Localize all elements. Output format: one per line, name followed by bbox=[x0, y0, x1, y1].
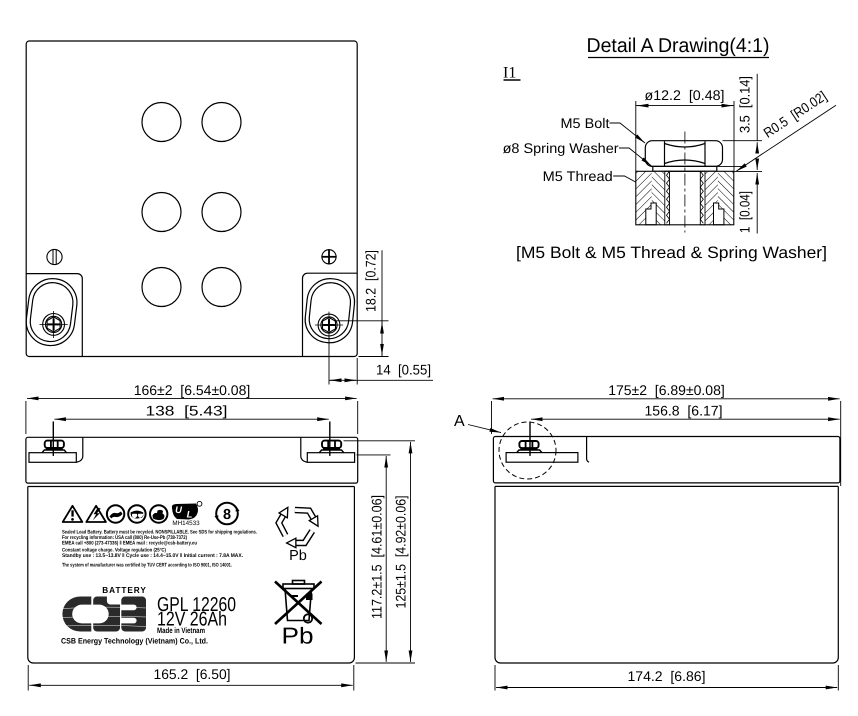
svg-text:ø12.2 [0.48]: ø12.2 [0.48] bbox=[645, 87, 725, 103]
svg-text:1 [0.04]: 1 [0.04] bbox=[737, 191, 753, 233]
svg-text:ø8 Spring Washer: ø8 Spring Washer bbox=[503, 140, 619, 156]
svg-text:The system of manufacturer was: The system of manufacturer was certified… bbox=[62, 563, 232, 569]
svg-text:BATTERY: BATTERY bbox=[102, 585, 147, 595]
svg-text:Detail A Drawing(4:1): Detail A Drawing(4:1) bbox=[587, 35, 770, 57]
svg-text:Standby use : 13.5~13.8V ‖ C: Standby use : 13.5~13.8V ‖ Cycle use : 1… bbox=[62, 553, 244, 559]
svg-text:CSB Energy Technology (Vietnam: CSB Energy Technology (Vietnam) Co., Ltd… bbox=[61, 637, 208, 646]
svg-text:I1: I1 bbox=[503, 65, 516, 82]
svg-text:M5 Thread: M5 Thread bbox=[543, 168, 613, 184]
svg-text:EMEA call +800 (273-47336) ‖: EMEA call +800 (273-47336) ‖ EMEA mail :… bbox=[62, 541, 197, 547]
svg-text:156.8 [6.17]: 156.8 [6.17] bbox=[645, 403, 723, 419]
svg-text:117.2±1.5 [4.61±0.06]: 117.2±1.5 [4.61±0.06] bbox=[369, 495, 385, 619]
svg-text:174.2 [6.86]: 174.2 [6.86] bbox=[628, 668, 706, 684]
svg-text:M5 Bolt: M5 Bolt bbox=[561, 115, 610, 131]
svg-text:Made in Vietnam: Made in Vietnam bbox=[157, 626, 205, 635]
svg-text:Pb: Pb bbox=[282, 623, 314, 649]
svg-text:8: 8 bbox=[223, 507, 231, 523]
svg-text:A: A bbox=[454, 413, 465, 430]
svg-text:14 [0.55]: 14 [0.55] bbox=[376, 362, 431, 378]
svg-text:125±1.5 [4.92±0.06]: 125±1.5 [4.92±0.06] bbox=[393, 496, 409, 609]
svg-text:18.2 [0.72]: 18.2 [0.72] bbox=[363, 250, 379, 312]
svg-text:[M5 Bolt & M5 Thread & Spring: [M5 Bolt & M5 Thread & Spring Washer] bbox=[516, 244, 827, 262]
svg-text:U: U bbox=[175, 505, 183, 516]
svg-text:Pb: Pb bbox=[289, 548, 307, 564]
svg-text:166±2 [6.54±0.08]: 166±2 [6.54±0.08] bbox=[134, 382, 251, 398]
svg-text:138 [5.43]: 138 [5.43] bbox=[146, 403, 228, 419]
svg-text:3.5 [0.14]: 3.5 [0.14] bbox=[737, 76, 753, 133]
svg-text:175±2 [6.89±0.08]: 175±2 [6.89±0.08] bbox=[608, 382, 725, 398]
svg-text:MH14533: MH14533 bbox=[172, 520, 200, 527]
svg-text:165.2 [6.50]: 165.2 [6.50] bbox=[154, 666, 231, 682]
